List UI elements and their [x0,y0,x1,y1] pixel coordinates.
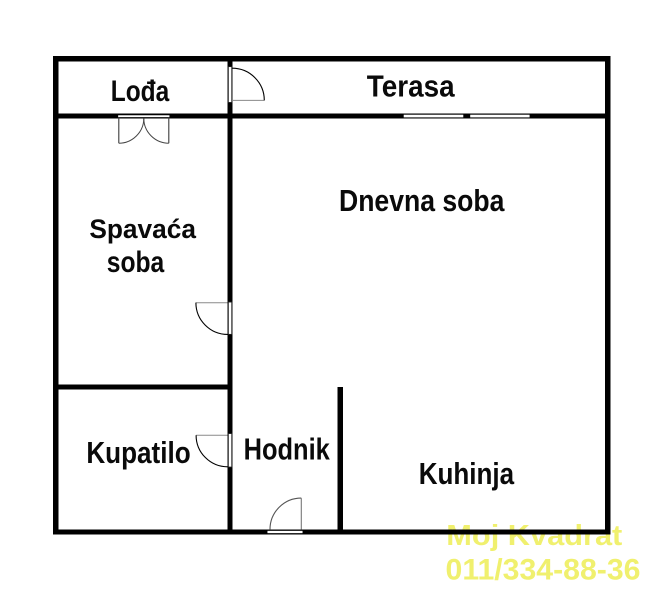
svg-text:Terasa: Terasa [367,69,455,104]
svg-text:011/334-88-36: 011/334-88-36 [446,553,641,586]
svg-text:soba: soba [107,246,165,279]
svg-text:Lođa: Lođa [111,75,170,108]
svg-text:Moj Kvadrat: Moj Kvadrat [446,520,622,552]
svg-text:Spavaća: Spavaća [89,214,196,244]
svg-text:Hodnik: Hodnik [244,432,331,467]
svg-text:Dnevna soba: Dnevna soba [339,183,505,218]
svg-text:Kupatilo: Kupatilo [86,435,190,470]
svg-text:Kuhinja: Kuhinja [419,456,515,491]
